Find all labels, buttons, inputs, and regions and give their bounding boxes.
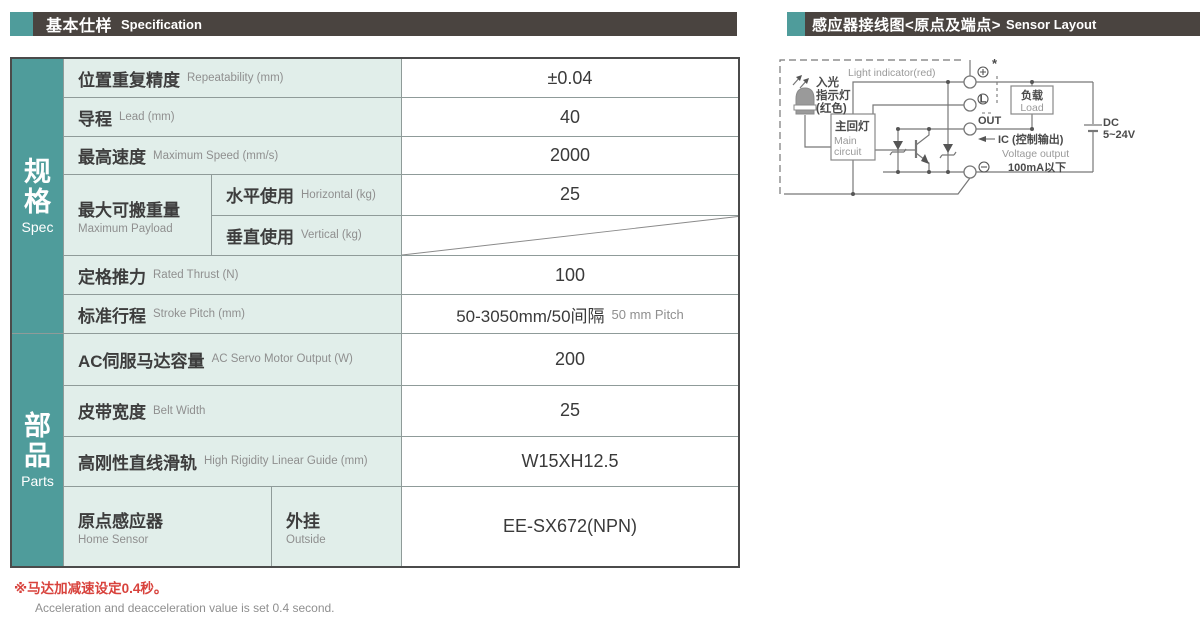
row-repeatability-label: 位置重复精度 Repeatability (mm) (64, 59, 402, 97)
row-servo-output-value: 200 (402, 334, 738, 385)
dc-voltage-label: 5~24V (1103, 129, 1136, 141)
label-cn: 外挂 (286, 507, 320, 532)
section-spec: 规格 Spec 位置重复精度 Repeatability (mm) ±0.04 … (12, 59, 738, 333)
label-cn: 皮带宽度 (78, 398, 146, 423)
sensor-layout-title-en: Sensor Layout (1006, 17, 1096, 32)
section-parts-label: 部品 Parts (12, 334, 64, 566)
label-cn: AC伺服马达容量 (78, 347, 205, 372)
label-cn: 导程 (78, 105, 112, 130)
row-payload-vertical: 垂直使用 Vertical (kg) (212, 216, 738, 256)
terminal-out (964, 123, 976, 135)
light-indicator-label-en: Light indicator(red) (848, 67, 936, 79)
wire-internal-plus (853, 82, 970, 114)
row-payload-horizontal: 水平使用 Horizontal (kg) 25 (212, 175, 738, 216)
junction-dot (927, 170, 931, 174)
row-lead-label: 导程 Lead (mm) (64, 98, 402, 136)
asterisk: * (992, 56, 998, 71)
ic-label: IC (控制输出) (998, 132, 1064, 146)
sensor-layout-header: 感应器接线图<原点及端点> Sensor Layout (787, 12, 1200, 36)
section-parts-label-en: Parts (21, 473, 54, 489)
not-applicable-diagonal (402, 216, 738, 256)
section-parts: 部品 Parts AC伺服马达容量 AC Servo Motor Output … (12, 333, 738, 566)
spec-header-title-cn: 基本仕样 (46, 12, 112, 36)
header-accent-square (787, 12, 805, 36)
section-spec-label-en: Spec (22, 219, 54, 235)
light-indicator-label-cn1: 入光 (816, 75, 839, 89)
label-en: Outside (286, 534, 326, 546)
junction-dot (946, 80, 950, 84)
row-rated-thrust-label: 定格推力 Rated Thrust (N) (64, 256, 402, 294)
label-en: Lead (mm) (119, 111, 175, 123)
wiring-schematic: 主回灯 Main circuit 负载 Load * L Light indic… (778, 52, 1200, 204)
sensor-layout-header-bar: 感应器接线图<原点及端点> Sensor Layout (805, 12, 1200, 36)
row-home-sensor: 原点感应器 Home Sensor 外挂 Outside EE-SX672(NP… (64, 487, 738, 566)
wire-internal-l (873, 105, 970, 114)
junction-dot (896, 170, 900, 174)
row-belt-width-label: 皮带宽度 Belt Width (64, 386, 402, 436)
light-indicator-label-cn2: 指示灯 (816, 88, 851, 102)
row-payload-vertical-value (402, 216, 738, 256)
load-label-cn: 负载 (1021, 88, 1043, 102)
footnote-en: Acceleration and deacceleration value is… (35, 601, 335, 615)
label-cn: 标准行程 (78, 302, 146, 327)
row-payload-vertical-label: 垂直使用 Vertical (kg) (212, 216, 402, 256)
sensor-layout-title-cn: 感应器接线图<原点及端点> (812, 14, 1001, 35)
main-circuit-label-en2: circuit (834, 146, 862, 158)
label-cn: 高刚性直线滑轨 (78, 449, 197, 474)
label-en: Stroke Pitch (mm) (153, 308, 245, 320)
row-belt-width-value: 25 (402, 386, 738, 436)
label-en: Maximum Payload (78, 223, 211, 235)
label-en: Belt Width (153, 405, 205, 417)
row-servo-output-label: AC伺服马达容量 AC Servo Motor Output (W) (64, 334, 402, 385)
row-stroke-pitch-value: 50-3050mm/50间隔 50 mm Pitch (402, 295, 738, 333)
bottom-rail (784, 178, 970, 194)
spec-header: 基本仕样 Specification (10, 12, 737, 36)
row-rated-thrust-value: 100 (402, 256, 738, 294)
junction-dot (896, 127, 900, 131)
label-cn: 位置重复精度 (78, 66, 180, 91)
section-parts-label-cn: 部品 (23, 411, 52, 471)
row-max-speed-value: 2000 (402, 137, 738, 174)
spec-header-bar: 基本仕样 Specification (33, 12, 737, 36)
terminal-plus (964, 76, 976, 88)
label-en: Vertical (kg) (301, 229, 362, 241)
label-en: AC Servo Motor Output (W) (212, 353, 353, 365)
row-max-payload: 最大可搬重量 Maximum Payload 水平使用 Horizontal (… (64, 175, 738, 256)
section-spec-label: 规格 Spec (12, 59, 64, 333)
label-cn: 原点感应器 (78, 507, 163, 532)
ic-arrow-head (978, 136, 986, 142)
row-linear-guide-value: W15XH12.5 (402, 437, 738, 487)
row-lead-value: 40 (402, 98, 738, 136)
stroke-value-en: 50 mm Pitch (612, 307, 684, 322)
row-max-speed: 最高速度 Maximum Speed (mm/s) 2000 (64, 137, 738, 175)
section-spec-label-cn: 规格 (23, 157, 52, 217)
label-en: High Rigidity Linear Guide (mm) (204, 455, 368, 467)
row-stroke-pitch: 标准行程 Stroke Pitch (mm) 50-3050mm/50间隔 50… (64, 295, 738, 333)
label-cn: 垂直使用 (226, 223, 294, 248)
transistor-collector (916, 129, 929, 145)
label-en: Home Sensor (78, 534, 148, 546)
row-rated-thrust: 定格推力 Rated Thrust (N) 100 (64, 256, 738, 295)
junction-dot (851, 192, 855, 196)
header-accent-square (10, 12, 33, 36)
current-limit-label: 100mA以下 (1008, 161, 1066, 174)
row-home-sensor-mount: 外挂 Outside (272, 487, 402, 566)
label-cn: 定格推力 (78, 263, 146, 288)
label-cn: 最高速度 (78, 143, 146, 168)
terminal-l (964, 99, 976, 111)
out-label: OUT (978, 115, 1002, 127)
plus-symbol-icon (978, 67, 988, 77)
row-belt-width: 皮带宽度 Belt Width 25 (64, 386, 738, 437)
voltage-output-label: Voltage output (1002, 148, 1069, 160)
terminal-minus (964, 166, 976, 178)
l-symbol-letter: L (980, 94, 987, 106)
row-stroke-pitch-label: 标准行程 Stroke Pitch (mm) (64, 295, 402, 333)
led-indicator-icon (793, 75, 816, 114)
light-indicator-label-cn3: (红色) (816, 101, 847, 115)
transistor-emitter-arrow (921, 154, 929, 164)
load-label-en: Load (1020, 102, 1044, 114)
specification-table: 规格 Spec 位置重复精度 Repeatability (mm) ±0.04 … (10, 57, 740, 568)
junction-dot (927, 127, 931, 131)
row-home-sensor-value: EE-SX672(NPN) (402, 487, 738, 566)
main-circuit-label-cn: 主回灯 (835, 119, 870, 133)
label-en: Horizontal (kg) (301, 189, 376, 201)
row-servo-output: AC伺服马达容量 AC Servo Motor Output (W) 200 (64, 334, 738, 386)
row-repeatability: 位置重复精度 Repeatability (mm) ±0.04 (64, 59, 738, 98)
sensor-wiring-diagram: 主回灯 Main circuit 负载 Load * L Light indic… (778, 52, 1200, 204)
footnote-cn: ※马达加减速设定0.4秒。 (14, 577, 335, 597)
row-payload-horizontal-label: 水平使用 Horizontal (kg) (212, 175, 402, 215)
minus-symbol-icon (979, 162, 989, 172)
row-home-sensor-label: 原点感应器 Home Sensor (64, 487, 272, 566)
row-max-payload-label: 最大可搬重量 Maximum Payload (64, 175, 212, 255)
label-cn: 水平使用 (226, 182, 294, 207)
label-cn: 最大可搬重量 (78, 196, 211, 221)
row-linear-guide: 高刚性直线滑轨 High Rigidity Linear Guide (mm) … (64, 437, 738, 488)
dc-label: DC (1103, 117, 1119, 129)
footnote: ※马达加减速设定0.4秒。 Acceleration and deacceler… (14, 577, 335, 615)
row-payload-horizontal-value: 25 (402, 175, 738, 215)
label-en: Rated Thrust (N) (153, 269, 238, 281)
junction-dot (1030, 127, 1034, 131)
junction-dot (1030, 80, 1034, 84)
stroke-value-cn: 50-3050mm/50间隔 (456, 302, 604, 327)
led-wire (805, 115, 831, 147)
label-en: Maximum Speed (mm/s) (153, 150, 278, 162)
label-en: Repeatability (mm) (187, 72, 284, 84)
junction-dot (946, 170, 950, 174)
row-linear-guide-label: 高刚性直线滑轨 High Rigidity Linear Guide (mm) (64, 437, 402, 487)
row-max-speed-label: 最高速度 Maximum Speed (mm/s) (64, 137, 402, 174)
spec-header-title-en: Specification (121, 17, 202, 32)
row-lead: 导程 Lead (mm) 40 (64, 98, 738, 137)
row-repeatability-value: ±0.04 (402, 59, 738, 97)
